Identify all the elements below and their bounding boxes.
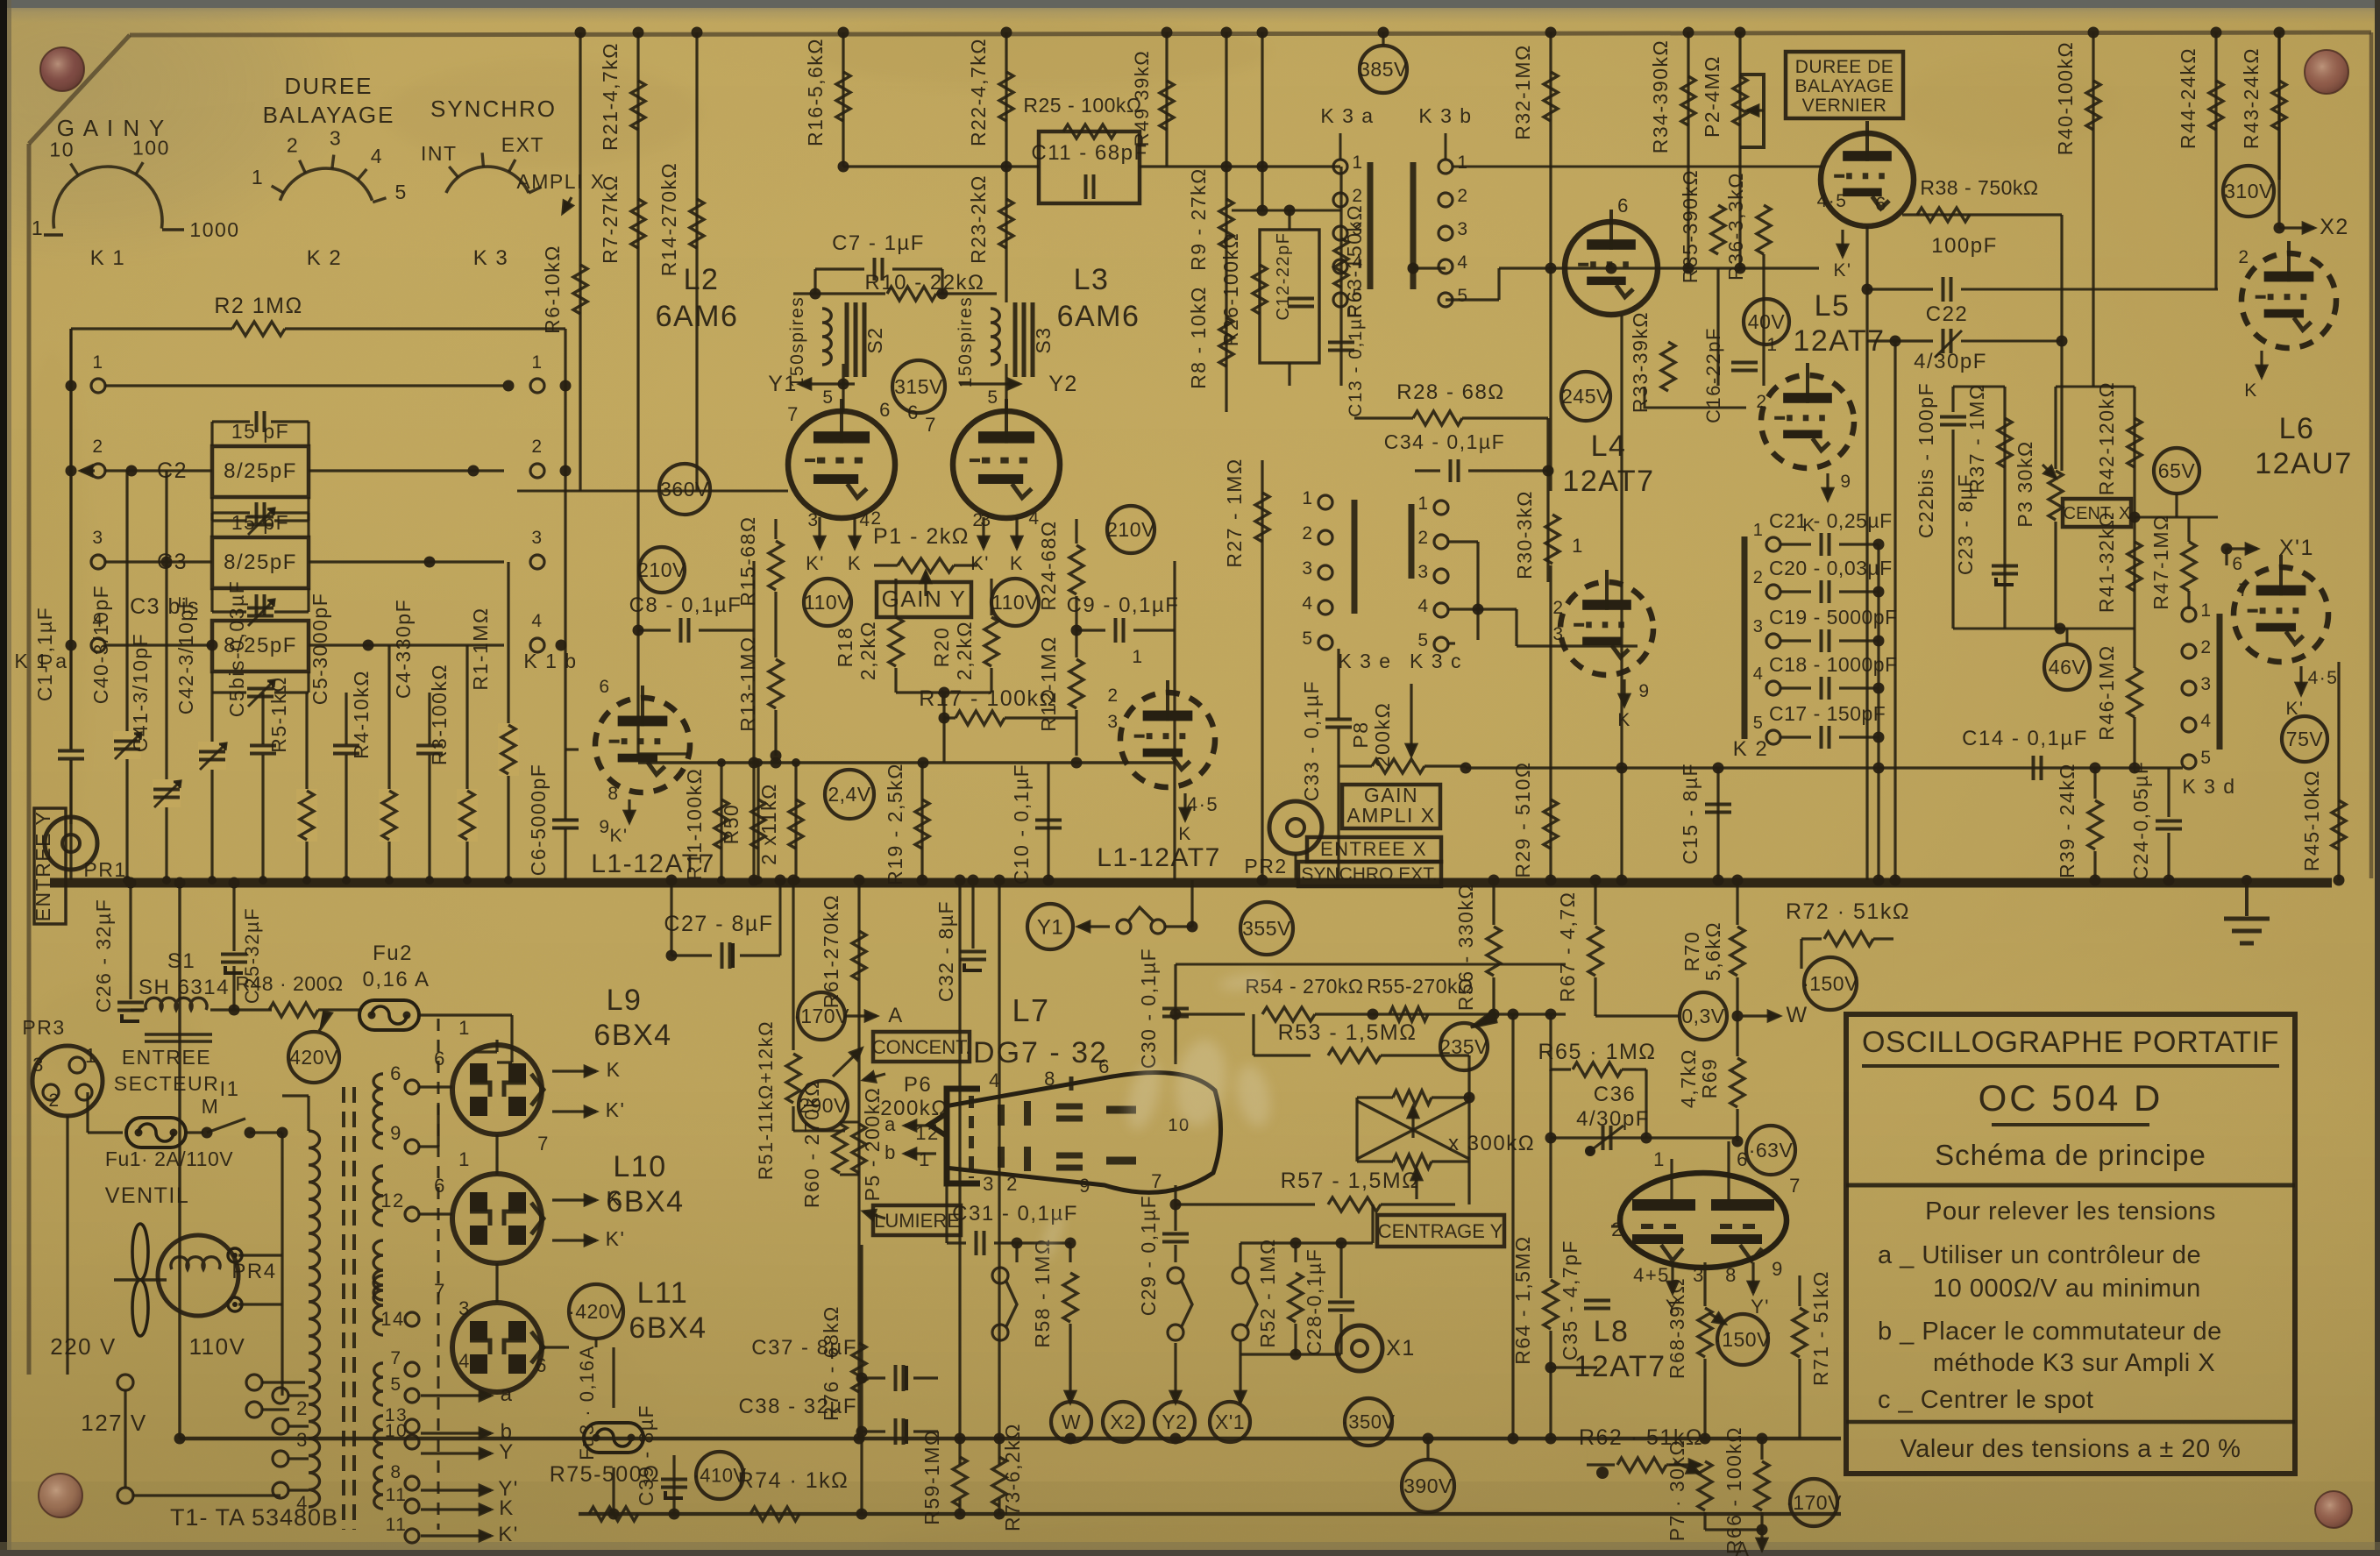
svg-text:·63V: ·63V <box>1749 1139 1794 1162</box>
svg-text:BALAYAGE: BALAYAGE <box>263 102 395 128</box>
svg-text:355V: 355V <box>1242 917 1291 940</box>
svg-text:R40-100kΩ: R40-100kΩ <box>2054 41 2077 155</box>
svg-text:R65 · 1MΩ: R65 · 1MΩ <box>1538 1040 1657 1064</box>
svg-text:1: 1 <box>1417 494 1429 514</box>
svg-text:K: K <box>2244 380 2258 401</box>
svg-text:R59-1MΩ: R59-1MΩ <box>920 1429 943 1525</box>
svg-text:15 pF: 15 pF <box>231 420 289 443</box>
svg-text:GAIN Y: GAIN Y <box>882 586 967 612</box>
svg-text:c _ Centrer le spot: c _ Centrer le spot <box>1878 1386 2093 1414</box>
svg-text:R48 · 200Ω: R48 · 200Ω <box>235 972 343 995</box>
svg-text:SYNCHRO: SYNCHRO <box>430 96 557 122</box>
svg-text:R67 - 4,7Ω: R67 - 4,7Ω <box>1556 892 1579 1003</box>
svg-text:2: 2 <box>1611 1219 1623 1240</box>
svg-text:SYNCHRO EXT.: SYNCHRO EXT. <box>1301 864 1437 885</box>
svg-text:Fu3 · 0,16A: Fu3 · 0,16A <box>576 1345 598 1460</box>
svg-text:9: 9 <box>599 817 610 837</box>
svg-text:3: 3 <box>296 1429 309 1451</box>
svg-text:C42-3/10pF: C42-3/10pF <box>174 595 197 714</box>
svg-text:R25 - 100kΩ: R25 - 100kΩ <box>1023 94 1141 117</box>
svg-text:210V: 210V <box>637 558 686 581</box>
svg-text:C26 - 32µF: C26 - 32µF <box>92 899 115 1013</box>
svg-text:9: 9 <box>1638 681 1650 701</box>
svg-text:4/30pF: 4/30pF <box>1576 1107 1650 1131</box>
svg-text:5: 5 <box>822 387 834 408</box>
svg-text:C21 - 0,25µF: C21 - 0,25µF <box>1769 509 1893 532</box>
svg-text:C7 - 1µF: C7 - 1µF <box>832 231 925 255</box>
svg-text:4: 4 <box>1302 593 1313 614</box>
svg-text:2: 2 <box>287 133 299 156</box>
svg-text:10 000Ω/V au minimun: 10 000Ω/V au minimun <box>1933 1275 2201 1303</box>
svg-text:R24-68Ω: R24-68Ω <box>1037 520 1060 610</box>
svg-text:A: A <box>1736 1538 1751 1556</box>
svg-text:1: 1 <box>458 1148 471 1170</box>
svg-text:Fu2: Fu2 <box>373 941 413 965</box>
svg-text:C1-0,1µF: C1-0,1µF <box>33 607 56 701</box>
svg-text:R71 - 51kΩ: R71 - 51kΩ <box>1809 1270 1832 1386</box>
svg-text:245V: 245V <box>1561 385 1610 408</box>
svg-text:200kΩ: 200kΩ <box>1371 702 1394 768</box>
svg-text:a _ Utiliser un contrôleur: a _ Utiliser un contrôleur de <box>1878 1241 2201 1269</box>
svg-text:R43-24kΩ: R43-24kΩ <box>2240 47 2263 149</box>
svg-text:4·5: 4·5 <box>1187 793 1218 815</box>
svg-text:R42-120kΩ: R42-120kΩ <box>2095 381 2118 495</box>
svg-text:S3: S3 <box>1032 326 1055 353</box>
svg-text:DUREE: DUREE <box>284 73 373 99</box>
svg-text:6: 6 <box>536 1354 548 1376</box>
svg-text:R12-1MΩ: R12-1MΩ <box>1037 636 1060 732</box>
svg-text:PR3: PR3 <box>22 1016 65 1039</box>
svg-text:3: 3 <box>2200 674 2212 694</box>
svg-text:6: 6 <box>2232 554 2243 574</box>
svg-text:3: 3 <box>1552 624 1564 644</box>
svg-text:R13-1MΩ: R13-1MΩ <box>736 636 759 732</box>
svg-text:6: 6 <box>599 677 610 697</box>
svg-text:40V: 40V <box>1748 310 1786 333</box>
svg-text:7: 7 <box>925 414 937 436</box>
svg-text:1: 1 <box>919 1148 931 1170</box>
svg-text:1: 1 <box>92 352 103 373</box>
svg-text:K 3 c: K 3 c <box>1410 650 1462 672</box>
svg-text:4: 4 <box>859 510 870 530</box>
svg-text:a: a <box>885 1113 897 1135</box>
svg-text:2: 2 <box>48 1091 60 1111</box>
svg-text:3: 3 <box>92 528 103 548</box>
svg-text:R20: R20 <box>930 627 953 668</box>
svg-text:K 3 e: K 3 e <box>1338 650 1391 672</box>
svg-text:3: 3 <box>807 510 819 530</box>
svg-text:·150V: ·150V <box>1715 1328 1771 1351</box>
svg-text:K 2: K 2 <box>1733 737 1769 761</box>
svg-text:210V: 210V <box>1106 518 1155 541</box>
svg-text:4,7kΩ: 4,7kΩ <box>1677 1048 1700 1108</box>
svg-text:L11: L11 <box>637 1276 689 1310</box>
svg-text:K 1: K 1 <box>90 246 126 270</box>
svg-text:R66 - 100kΩ: R66 - 100kΩ <box>1723 1426 1745 1554</box>
svg-text:5: 5 <box>1753 714 1765 733</box>
svg-text:K': K' <box>606 1098 626 1121</box>
svg-text:6: 6 <box>1875 193 1887 215</box>
svg-text:W: W <box>1062 1410 1081 1433</box>
svg-text:L10: L10 <box>613 1150 666 1183</box>
svg-text:OC 504 D: OC 504 D <box>1979 1077 2163 1119</box>
svg-text:R45-10kΩ: R45-10kΩ <box>2300 770 2323 871</box>
svg-text:220 V: 220 V <box>50 1333 116 1360</box>
svg-text:5: 5 <box>2200 748 2212 768</box>
svg-text:1: 1 <box>85 1044 97 1067</box>
svg-text:·350V: ·350V <box>1341 1411 1395 1433</box>
svg-text:6: 6 <box>390 1062 402 1084</box>
svg-text:6BX4: 6BX4 <box>629 1311 707 1345</box>
svg-text:Y2: Y2 <box>1048 372 1078 396</box>
svg-text:2: 2 <box>1107 686 1119 706</box>
svg-text:K: K <box>499 1496 515 1520</box>
svg-text:K': K' <box>806 552 825 574</box>
svg-text:6: 6 <box>907 401 920 423</box>
svg-text:X2: X2 <box>2320 215 2349 239</box>
svg-text:·420V: ·420V <box>568 1300 624 1323</box>
svg-text:ENTREE Y: ENTREE Y <box>32 811 54 922</box>
svg-text:K': K' <box>1833 260 1851 281</box>
svg-text:C27 - 8µF: C27 - 8µF <box>664 912 773 936</box>
svg-text:6: 6 <box>434 1175 446 1197</box>
svg-text:7: 7 <box>787 403 799 425</box>
svg-text:3: 3 <box>458 1297 471 1319</box>
svg-text:65V: 65V <box>2158 459 2196 482</box>
svg-text:2,2kΩ: 2,2kΩ <box>856 621 879 680</box>
svg-text:OSCILLOGRAPHE PORTATIF: OSCILLOGRAPHE PORTATIF <box>1862 1026 2279 1059</box>
svg-text:R30-3kΩ: R30-3kΩ <box>1513 490 1536 579</box>
svg-text:R36-3,3kΩ: R36-3,3kΩ <box>1724 172 1747 281</box>
svg-text:4·5: 4·5 <box>1817 191 1848 211</box>
svg-text:K 3 a: K 3 a <box>1320 104 1374 127</box>
svg-text:1: 1 <box>1653 1148 1666 1170</box>
svg-text:5,6kΩ: 5,6kΩ <box>1702 921 1724 981</box>
svg-text:x 300kΩ: x 300kΩ <box>1448 1132 1535 1155</box>
svg-text:R15-68Ω: R15-68Ω <box>736 515 759 606</box>
svg-text:R35-390kΩ: R35-390kΩ <box>1679 169 1702 283</box>
svg-text:W: W <box>1786 1003 1808 1027</box>
svg-text:9: 9 <box>1079 1175 1091 1197</box>
svg-text:46V: 46V <box>2049 656 2086 679</box>
svg-text:C35 - 4,7pF: C35 - 4,7pF <box>1559 1240 1581 1361</box>
svg-text:R75-500Ω: R75-500Ω <box>550 1462 661 1487</box>
svg-text:7: 7 <box>434 1280 446 1302</box>
svg-text:235V: 235V <box>1439 1035 1488 1058</box>
svg-text:12AU7: 12AU7 <box>2255 447 2352 480</box>
svg-text:6: 6 <box>879 399 892 421</box>
svg-text:R4-10kΩ: R4-10kΩ <box>350 670 373 759</box>
svg-text:M: M <box>202 1095 220 1118</box>
svg-text:Pour relever les tensions: Pour relever les tensions <box>1925 1197 2216 1226</box>
svg-text:R9 - 27kΩ: R9 - 27kΩ <box>1187 167 1210 271</box>
svg-text:K': K' <box>606 1227 626 1250</box>
svg-text:C33 - 0,1µF: C33 - 0,1µF <box>1300 680 1323 801</box>
svg-text:4: 4 <box>458 1350 471 1372</box>
svg-text:75V: 75V <box>2286 728 2324 750</box>
svg-text:3: 3 <box>1457 219 1468 239</box>
svg-text:C32 - 8µF: C32 - 8µF <box>934 900 957 1002</box>
svg-text:R11-100kΩ: R11-100kΩ <box>683 768 706 881</box>
svg-text:6: 6 <box>1098 1055 1111 1077</box>
svg-text:C5-3000pF: C5-3000pF <box>309 593 331 706</box>
svg-text:C15 - 8µF: C15 - 8µF <box>1679 763 1702 864</box>
svg-text:385V: 385V <box>1359 58 1408 81</box>
svg-text:R21-4,7kΩ: R21-4,7kΩ <box>599 42 622 151</box>
svg-text:0,16 A: 0,16 A <box>362 968 430 991</box>
svg-text:S2: S2 <box>863 326 886 353</box>
svg-text:PR1: PR1 <box>83 858 126 881</box>
svg-text:C4-330pF: C4-330pF <box>392 599 415 699</box>
svg-text:C12-22pF: C12-22pF <box>1274 232 1293 321</box>
svg-text:EXT: EXT <box>501 133 544 156</box>
svg-text:K: K <box>848 552 862 574</box>
svg-text:2: 2 <box>1006 1173 1019 1195</box>
svg-text:R29 - 510Ω: R29 - 510Ω <box>1511 761 1534 877</box>
svg-text:2: 2 <box>1457 186 1468 206</box>
svg-text:C37 - 8µF: C37 - 8µF <box>751 1336 857 1360</box>
svg-text:R39 - 24kΩ: R39 - 24kΩ <box>2056 763 2078 878</box>
svg-text:C29 - 0,1µF: C29 - 0,1µF <box>1137 1195 1160 1316</box>
svg-text:1: 1 <box>252 166 264 188</box>
svg-text:VENTIL: VENTIL <box>105 1183 190 1208</box>
svg-text:420V: 420V <box>289 1046 338 1069</box>
svg-text:C23 - 8µF: C23 - 8µF <box>1954 473 1977 575</box>
svg-text:7: 7 <box>2238 580 2249 600</box>
svg-text:2: 2 <box>1352 186 1363 206</box>
svg-text:0,3V: 0,3V <box>1681 1005 1724 1027</box>
svg-text:C6-5000pF: C6-5000pF <box>527 764 550 877</box>
svg-text:8/25pF: 8/25pF <box>224 459 297 483</box>
svg-text:7: 7 <box>1789 1175 1801 1197</box>
svg-text:R23-2kΩ: R23-2kΩ <box>967 174 990 264</box>
svg-text:C3: C3 <box>157 550 188 574</box>
svg-text:K 1 b: K 1 b <box>523 650 577 672</box>
svg-text:R57 - 1,5MΩ: R57 - 1,5MΩ <box>1281 1169 1420 1193</box>
svg-text:4: 4 <box>371 145 383 167</box>
svg-text:3: 3 <box>1753 617 1765 636</box>
svg-text:Fu1· 2A/110V: Fu1· 2A/110V <box>105 1147 233 1170</box>
svg-text:C8 - 0,1µF: C8 - 0,1µF <box>629 593 742 617</box>
svg-text:R41-32kΩ: R41-32kΩ <box>2095 511 2118 613</box>
svg-text:Valeur des tensions a ± 20: Valeur des tensions a ± 20 % <box>1900 1435 2241 1463</box>
svg-text:L6: L6 <box>2279 412 2315 445</box>
svg-text:R69: R69 <box>1698 1058 1721 1099</box>
svg-text:C22bis - 100pF: C22bis - 100pF <box>1915 382 1937 538</box>
svg-text:R72 · 51kΩ: R72 · 51kΩ <box>1786 899 1910 924</box>
svg-text:R27 - 1MΩ: R27 - 1MΩ <box>1223 458 1246 567</box>
svg-text:8: 8 <box>1044 1068 1056 1090</box>
svg-text:3: 3 <box>1693 1264 1705 1286</box>
svg-text:Schéma de principe: Schéma de principe <box>1935 1139 2206 1171</box>
svg-text:8/25pF: 8/25pF <box>224 551 297 574</box>
svg-text:C11 - 68pF: C11 - 68pF <box>1031 141 1147 165</box>
svg-text:C9 - 0,1µF: C9 - 0,1µF <box>1067 593 1180 617</box>
svg-text:L1-12AT7: L1-12AT7 <box>1097 843 1221 872</box>
svg-text:1: 1 <box>1132 647 1143 667</box>
svg-text:R64 - 1,5MΩ: R64 - 1,5MΩ <box>1511 1235 1534 1364</box>
svg-text:C38 - 32µF: C38 - 32µF <box>738 1395 857 1418</box>
svg-text:1: 1 <box>1352 153 1363 173</box>
svg-text:2: 2 <box>92 437 103 457</box>
svg-text:3: 3 <box>1302 558 1313 579</box>
svg-text:R26-100kΩ: R26-100kΩ <box>1219 232 1242 346</box>
svg-text:K': K' <box>970 552 990 574</box>
svg-text:R33-39kΩ: R33-39kΩ <box>1629 311 1652 413</box>
svg-text:b: b <box>885 1141 897 1163</box>
svg-text:P6: P6 <box>904 1073 932 1097</box>
svg-text:8: 8 <box>607 784 619 804</box>
svg-text:DG7 - 32: DG7 - 32 <box>973 1036 1108 1069</box>
svg-text:L4: L4 <box>1591 430 1627 463</box>
svg-text:5: 5 <box>1417 630 1429 650</box>
svg-text:R8 - 10kΩ: R8 - 10kΩ <box>1187 286 1210 389</box>
svg-text:A: A <box>888 1004 904 1027</box>
svg-text:K: K <box>1178 824 1192 844</box>
svg-text:3: 3 <box>531 528 543 548</box>
svg-text:15 pF: 15 pF <box>231 511 289 534</box>
svg-text:K 3 d: K 3 d <box>2182 775 2235 798</box>
svg-text:1: 1 <box>1302 488 1313 508</box>
svg-text:9: 9 <box>1840 472 1851 492</box>
svg-text:R56 - 330kΩ: R56 - 330kΩ <box>1454 883 1477 1011</box>
svg-text:b _ Placer le commutateur d: b _ Placer le commutateur de <box>1878 1318 2222 1346</box>
svg-text:CONCENT.: CONCENT. <box>872 1036 970 1058</box>
svg-text:4/30pF: 4/30pF <box>1914 350 1987 373</box>
svg-text:6: 6 <box>1737 1148 1749 1170</box>
svg-text:4: 4 <box>1457 252 1468 273</box>
svg-text:PR4: PR4 <box>231 1260 276 1283</box>
svg-text:P8: P8 <box>1349 721 1372 748</box>
svg-text:SH 6314: SH 6314 <box>139 976 230 999</box>
svg-text:7: 7 <box>390 1348 401 1368</box>
svg-text:K: K <box>607 1187 622 1210</box>
svg-text:C36: C36 <box>1594 1083 1637 1106</box>
svg-text:AMPLI X: AMPLI X <box>1346 804 1435 827</box>
svg-text:R63-150kΩ: R63-150kΩ <box>1343 204 1366 318</box>
svg-text:6: 6 <box>1617 195 1630 217</box>
svg-text:BALAYAGE: BALAYAGE <box>1795 76 1894 96</box>
svg-text:2: 2 <box>1756 392 1767 412</box>
svg-text:C41-3/10pF: C41-3/10pF <box>129 633 152 752</box>
svg-text:Y: Y <box>499 1440 515 1464</box>
svg-text:DUREE DE: DUREE DE <box>1795 57 1894 77</box>
svg-text:L9: L9 <box>607 984 643 1017</box>
svg-text:10: 10 <box>49 138 75 160</box>
svg-text:2: 2 <box>1417 528 1429 548</box>
svg-text:R5-1kΩ: R5-1kΩ <box>267 676 290 753</box>
svg-text:R53 - 1,5MΩ: R53 - 1,5MΩ <box>1278 1020 1417 1045</box>
svg-text:R28 - 68Ω: R28 - 68Ω <box>1396 380 1505 404</box>
svg-text:Y': Y' <box>1751 1296 1770 1318</box>
svg-text:310V: 310V <box>2224 180 2273 202</box>
svg-text:5: 5 <box>394 181 407 203</box>
svg-text:R7-27kΩ: R7-27kΩ <box>599 174 622 264</box>
svg-text:C10 - 0,1µF: C10 - 0,1µF <box>1010 764 1033 885</box>
svg-text:K 3: K 3 <box>473 246 509 270</box>
svg-text:9: 9 <box>390 1122 402 1144</box>
svg-text:4: 4 <box>2200 711 2212 731</box>
svg-text:2: 2 <box>531 437 543 457</box>
svg-text:4+5: 4+5 <box>1633 1264 1670 1286</box>
svg-text:S1: S1 <box>167 949 195 973</box>
svg-text:L3: L3 <box>1074 263 1110 296</box>
svg-text:AMPLI X: AMPLI X <box>516 170 605 193</box>
svg-text:6AM6: 6AM6 <box>656 300 739 333</box>
svg-text:Y1: Y1 <box>768 372 798 396</box>
svg-text:8: 8 <box>390 1462 401 1482</box>
svg-text:100pF: 100pF <box>1931 234 1998 258</box>
svg-text:K: K <box>1617 710 1631 730</box>
svg-text:INT: INT <box>421 142 458 165</box>
svg-text:C39 - 8µF: C39 - 8µF <box>635 1404 657 1506</box>
svg-text:P2-4MΩ: P2-4MΩ <box>1701 55 1723 138</box>
svg-text:R32-1MΩ: R32-1MΩ <box>1511 44 1534 140</box>
svg-text:1: 1 <box>2200 600 2212 621</box>
svg-text:R38 - 750kΩ: R38 - 750kΩ <box>1920 176 2038 199</box>
svg-text:R19 - 2,5kΩ: R19 - 2,5kΩ <box>884 763 906 885</box>
svg-text:L7: L7 <box>1012 992 1049 1028</box>
svg-text:6BX4: 6BX4 <box>593 1019 671 1052</box>
svg-text:X1: X1 <box>1386 1336 1416 1361</box>
svg-text:R47-1MΩ: R47-1MΩ <box>2149 514 2172 610</box>
svg-text:·170V: ·170V <box>793 1005 849 1027</box>
svg-text:2: 2 <box>2238 247 2249 267</box>
svg-text:1: 1 <box>1572 535 1584 557</box>
svg-text:5: 5 <box>987 387 998 408</box>
svg-text:2: 2 <box>1302 523 1313 544</box>
svg-text:Y1: Y1 <box>1037 915 1063 939</box>
svg-text:R52 - 1MΩ: R52 - 1MΩ <box>1256 1238 1279 1347</box>
svg-text:C28-0,1µF: C28-0,1µF <box>1303 1248 1325 1356</box>
svg-text:5: 5 <box>1302 629 1313 649</box>
svg-text:127 V: 127 V <box>81 1410 146 1436</box>
svg-text:P1 - 2kΩ: P1 - 2kΩ <box>873 524 970 549</box>
svg-text:C20 - 0,03µF: C20 - 0,03µF <box>1769 557 1893 579</box>
svg-text:Y2: Y2 <box>1162 1410 1187 1433</box>
svg-text:5: 5 <box>1457 286 1468 306</box>
svg-text:12: 12 <box>915 1122 939 1144</box>
svg-text:4: 4 <box>531 611 543 631</box>
svg-text:2,4V: 2,4V <box>828 783 870 806</box>
svg-text:K': K' <box>609 826 628 846</box>
svg-text:2: 2 <box>296 1397 309 1419</box>
svg-text:3: 3 <box>980 510 991 530</box>
svg-text:315V: 315V <box>894 375 943 398</box>
svg-text:1: 1 <box>32 217 44 239</box>
svg-text:C22: C22 <box>1926 302 1969 326</box>
svg-text:5: 5 <box>390 1375 401 1395</box>
svg-text:1: 1 <box>531 352 543 373</box>
svg-text:R68-39kΩ: R68-39kΩ <box>1666 1277 1688 1379</box>
svg-text:R51-11kΩ+12kΩ: R51-11kΩ+12kΩ <box>755 1020 777 1180</box>
svg-text:R34-390kΩ: R34-390kΩ <box>1649 39 1672 153</box>
svg-text:ENTREE: ENTREE <box>122 1046 211 1069</box>
svg-text:L2: L2 <box>684 263 720 296</box>
svg-text:K: K <box>607 1058 622 1081</box>
svg-text:110V: 110V <box>189 1333 246 1360</box>
svg-text:K: K <box>1010 552 1024 574</box>
svg-text:C40-3/10pF: C40-3/10pF <box>89 585 112 704</box>
svg-text:C34 - 0,1µF: C34 - 0,1µF <box>1384 430 1505 453</box>
svg-text:C24-0,05µF: C24-0,05µF <box>2129 761 2152 881</box>
svg-text:C13 - 0,1µF: C13 - 0,1µF <box>1346 305 1366 417</box>
svg-text:P3 30kΩ: P3 30kΩ <box>2014 440 2036 527</box>
svg-text:R46-1MΩ: R46-1MΩ <box>2095 644 2118 741</box>
svg-text:L5: L5 <box>1815 289 1851 323</box>
svg-text:150spires: 150spires <box>956 296 976 388</box>
svg-text:R16-5,6kΩ: R16-5,6kΩ <box>804 38 827 146</box>
